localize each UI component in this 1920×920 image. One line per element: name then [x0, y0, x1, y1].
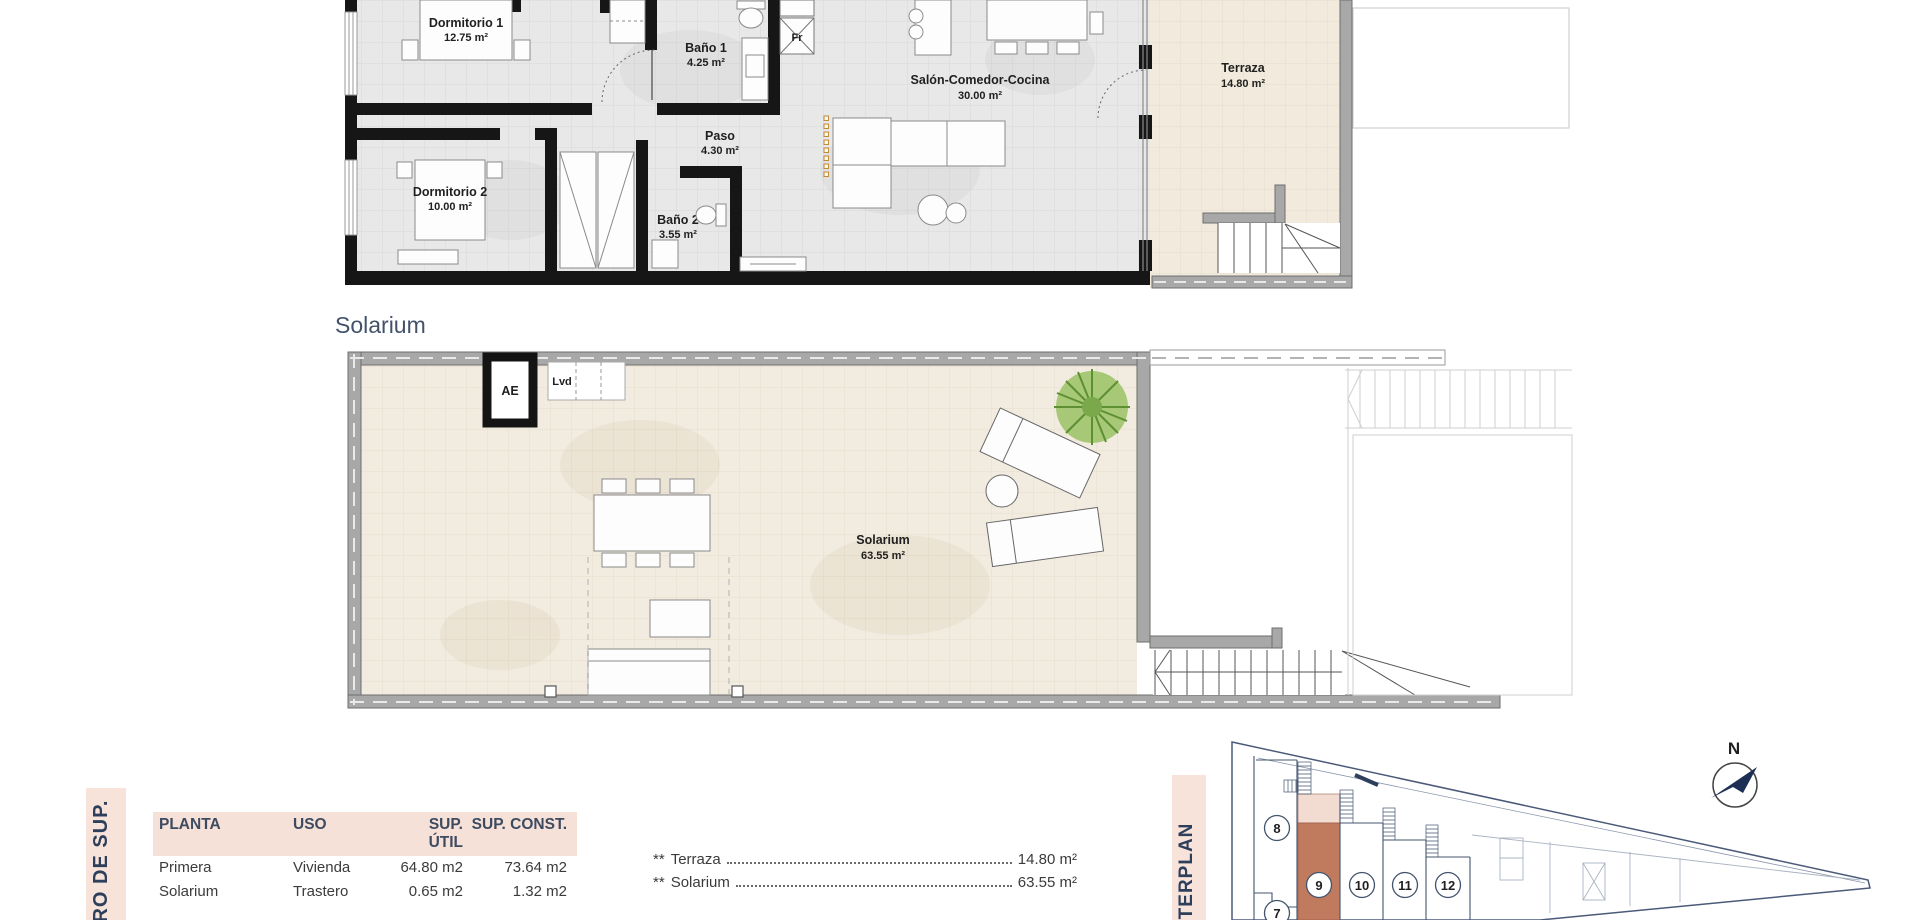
- surface-table: PLANTA USO SUP. ÚTIL SUP. CONST. Primera…: [153, 812, 577, 904]
- unit9-block[interactable]: [1298, 823, 1340, 920]
- outdoor-table: [594, 479, 710, 567]
- window-left-1: [345, 12, 357, 95]
- neighbor-stairs-lower: [1153, 650, 1470, 695]
- cell-planta: Solarium: [159, 881, 293, 903]
- surface-side-strip: DRO DE SUP.: [86, 788, 126, 920]
- note-solarium: ** Solarium 63.55 m²: [653, 868, 1077, 891]
- room-label-dorm1: Dormitorio 1: [429, 16, 503, 30]
- note-value: 14.80 m²: [1018, 851, 1077, 868]
- bed-1: [402, 0, 530, 60]
- room-area-bath2: 3.55 m²: [659, 229, 697, 241]
- unit-11-number: 11: [1398, 878, 1412, 893]
- surface-table-header: PLANTA USO SUP. ÚTIL SUP. CONST.: [153, 812, 577, 856]
- cell-uso: Trastero: [293, 881, 397, 903]
- room-area-terraza: 14.80 m²: [1221, 78, 1265, 90]
- neighbor-terrace-outline: [1353, 8, 1569, 128]
- side-table: [986, 475, 1018, 507]
- room-label-salon: Salón-Comedor-Cocina: [911, 73, 1051, 87]
- neighbor-roof-outline: [1345, 368, 1572, 695]
- fridge-box: [780, 0, 814, 54]
- surface-notes: ** Terraza 14.80 m² ** Solarium 63.55 m²: [653, 845, 1077, 891]
- masterplan-side-strip: STERPLAN: [1172, 775, 1206, 920]
- tv-unit: [740, 257, 806, 271]
- note-marker: **: [653, 874, 665, 891]
- note-label: Solarium: [671, 874, 730, 891]
- cell-util: 0.65 m2: [397, 881, 463, 903]
- north-compass-icon: N: [1711, 739, 1757, 807]
- surface-side-label: DRO DE SUP.: [90, 788, 113, 920]
- upper-floor-plan: Dormitorio 1 12.75 m² Baño 1 4.25 m² Fr: [340, 0, 1580, 300]
- dotted-leader: [736, 885, 1012, 887]
- unit-10-number: 10: [1355, 878, 1369, 893]
- window-left-2: [345, 160, 357, 235]
- col-planta: PLANTA: [159, 816, 293, 852]
- room-label-solarium: Solarium: [856, 533, 910, 547]
- col-uso: USO: [293, 816, 397, 852]
- north-label: N: [1728, 739, 1740, 758]
- brochure-page: Dormitorio 1 12.75 m² Baño 1 4.25 m² Fr: [0, 0, 1920, 920]
- solarium-heading: Solarium: [335, 312, 426, 339]
- elevator-label: AE: [501, 384, 518, 398]
- room-label-dorm2: Dormitorio 2: [413, 185, 487, 199]
- room-area-solarium: 63.55 m²: [861, 550, 905, 562]
- unit-12-number: 12: [1441, 878, 1455, 893]
- cell-uso: Vivienda: [293, 857, 397, 879]
- solarium-plan: AE Lvd Solarium 63.55 m²: [340, 345, 1580, 720]
- unit9-upper: [1298, 794, 1340, 823]
- table-row: Primera Vivienda 64.80 m2 73.64 m2: [153, 856, 577, 880]
- col-sup-util: SUP. ÚTIL: [397, 816, 463, 852]
- fridge-label: Fr: [792, 32, 804, 44]
- masterplan-side-label: STERPLAN: [1176, 775, 1198, 920]
- col-sup-const: SUP. CONST.: [463, 816, 567, 852]
- unit-9-number: 9: [1315, 878, 1322, 893]
- unit-8-number: 8: [1273, 821, 1280, 836]
- dotted-leader: [727, 862, 1012, 864]
- note-marker: **: [653, 851, 665, 868]
- table-row: Solarium Trastero 0.65 m2 1.32 m2: [153, 880, 577, 904]
- cell-planta: Primera: [159, 857, 293, 879]
- room-area-salon: 30.00 m²: [958, 90, 1002, 102]
- room-label-paso: Paso: [705, 129, 735, 143]
- terrace-stairs: [1218, 223, 1340, 273]
- room-area-paso: 4.30 m²: [701, 145, 739, 157]
- masterplan-diagram: 7 8 9 10 11 12 N: [1210, 730, 1920, 920]
- room-label-bath2: Baño 2: [657, 213, 699, 227]
- room-area-bath1: 4.25 m²: [687, 57, 725, 69]
- room-area-dorm2: 10.00 m²: [428, 201, 472, 213]
- note-value: 63.55 m²: [1018, 874, 1077, 891]
- note-terraza: ** Terraza 14.80 m²: [653, 845, 1077, 868]
- kitchen-island: [909, 0, 951, 55]
- cell-const: 1.32 m2: [463, 881, 567, 903]
- room-area-dorm1: 12.75 m²: [444, 32, 488, 44]
- cell-const: 73.64 m2: [463, 857, 567, 879]
- hall-wardrobe: [610, 0, 645, 43]
- toilet-1: [737, 1, 765, 28]
- note-label: Terraza: [671, 851, 721, 868]
- unit-7-number: 7: [1273, 906, 1280, 920]
- room-label-bath1: Baño 1: [685, 41, 727, 55]
- sink-counter-1: [742, 38, 768, 100]
- laundry-label: Lvd: [552, 376, 572, 388]
- cell-util: 64.80 m2: [397, 857, 463, 879]
- room-label-terraza: Terraza: [1221, 61, 1266, 75]
